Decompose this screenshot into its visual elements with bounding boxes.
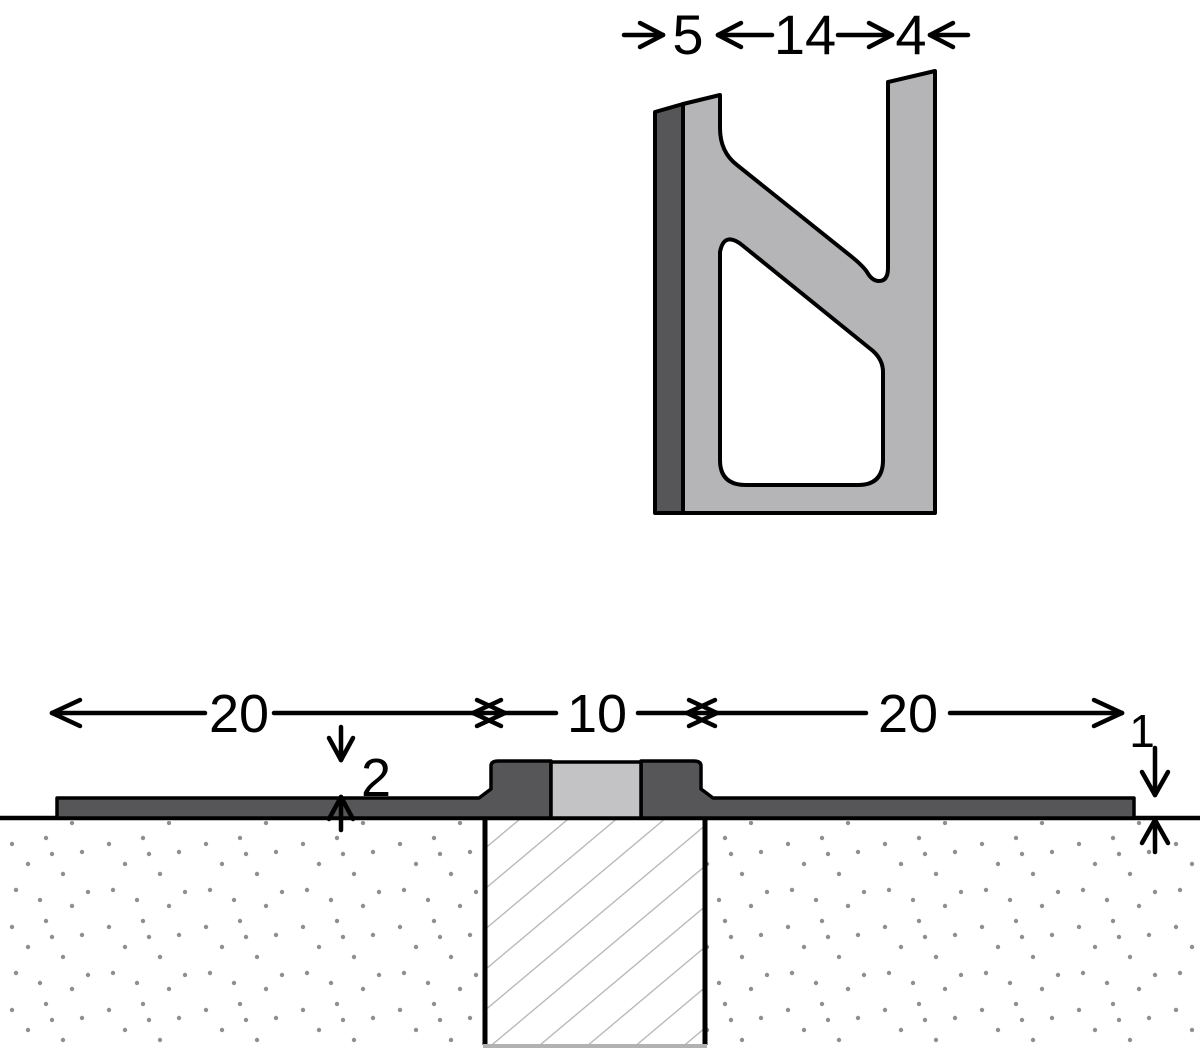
dim-label-left-wall: 5 — [672, 3, 703, 66]
dim-arrow-left-icon — [930, 23, 968, 47]
dim-arrow-right-icon — [838, 23, 892, 47]
dim-arrow-down-icon — [329, 727, 353, 760]
joint-filler-block — [483, 820, 707, 1046]
elastic-insert — [551, 762, 641, 818]
dim-label-joint-gap: 10 — [567, 684, 627, 744]
dim-label-flange-thickness: 1 — [1129, 705, 1155, 757]
profile-body — [683, 71, 935, 513]
profile-anchor-strip — [655, 104, 683, 513]
concrete-right — [707, 821, 1200, 1050]
technical-drawing-canvas: 5 14 4 — [0, 0, 1200, 1050]
profile-cross-section: 5 14 4 — [624, 3, 968, 513]
dim-arrow-left-icon — [718, 23, 772, 47]
flange-thickness-dimension — [1142, 748, 1168, 852]
dim-label-right-flange: 20 — [878, 684, 938, 744]
step-height-dimension — [329, 727, 353, 830]
dim-label-step-height: 2 — [361, 748, 391, 808]
left-flange — [57, 761, 551, 818]
dim-arrow-right-icon — [624, 23, 663, 47]
dim-label-left-flange: 20 — [209, 684, 269, 744]
right-flange — [641, 761, 1134, 818]
installation-cross-section: 20 10 20 2 — [0, 684, 1200, 1050]
dim-label-right-wall: 4 — [895, 3, 926, 66]
dim-label-channel: 14 — [774, 3, 836, 66]
joint-profile-drawing: 5 14 4 — [0, 0, 1200, 1050]
concrete-left — [0, 821, 483, 1050]
